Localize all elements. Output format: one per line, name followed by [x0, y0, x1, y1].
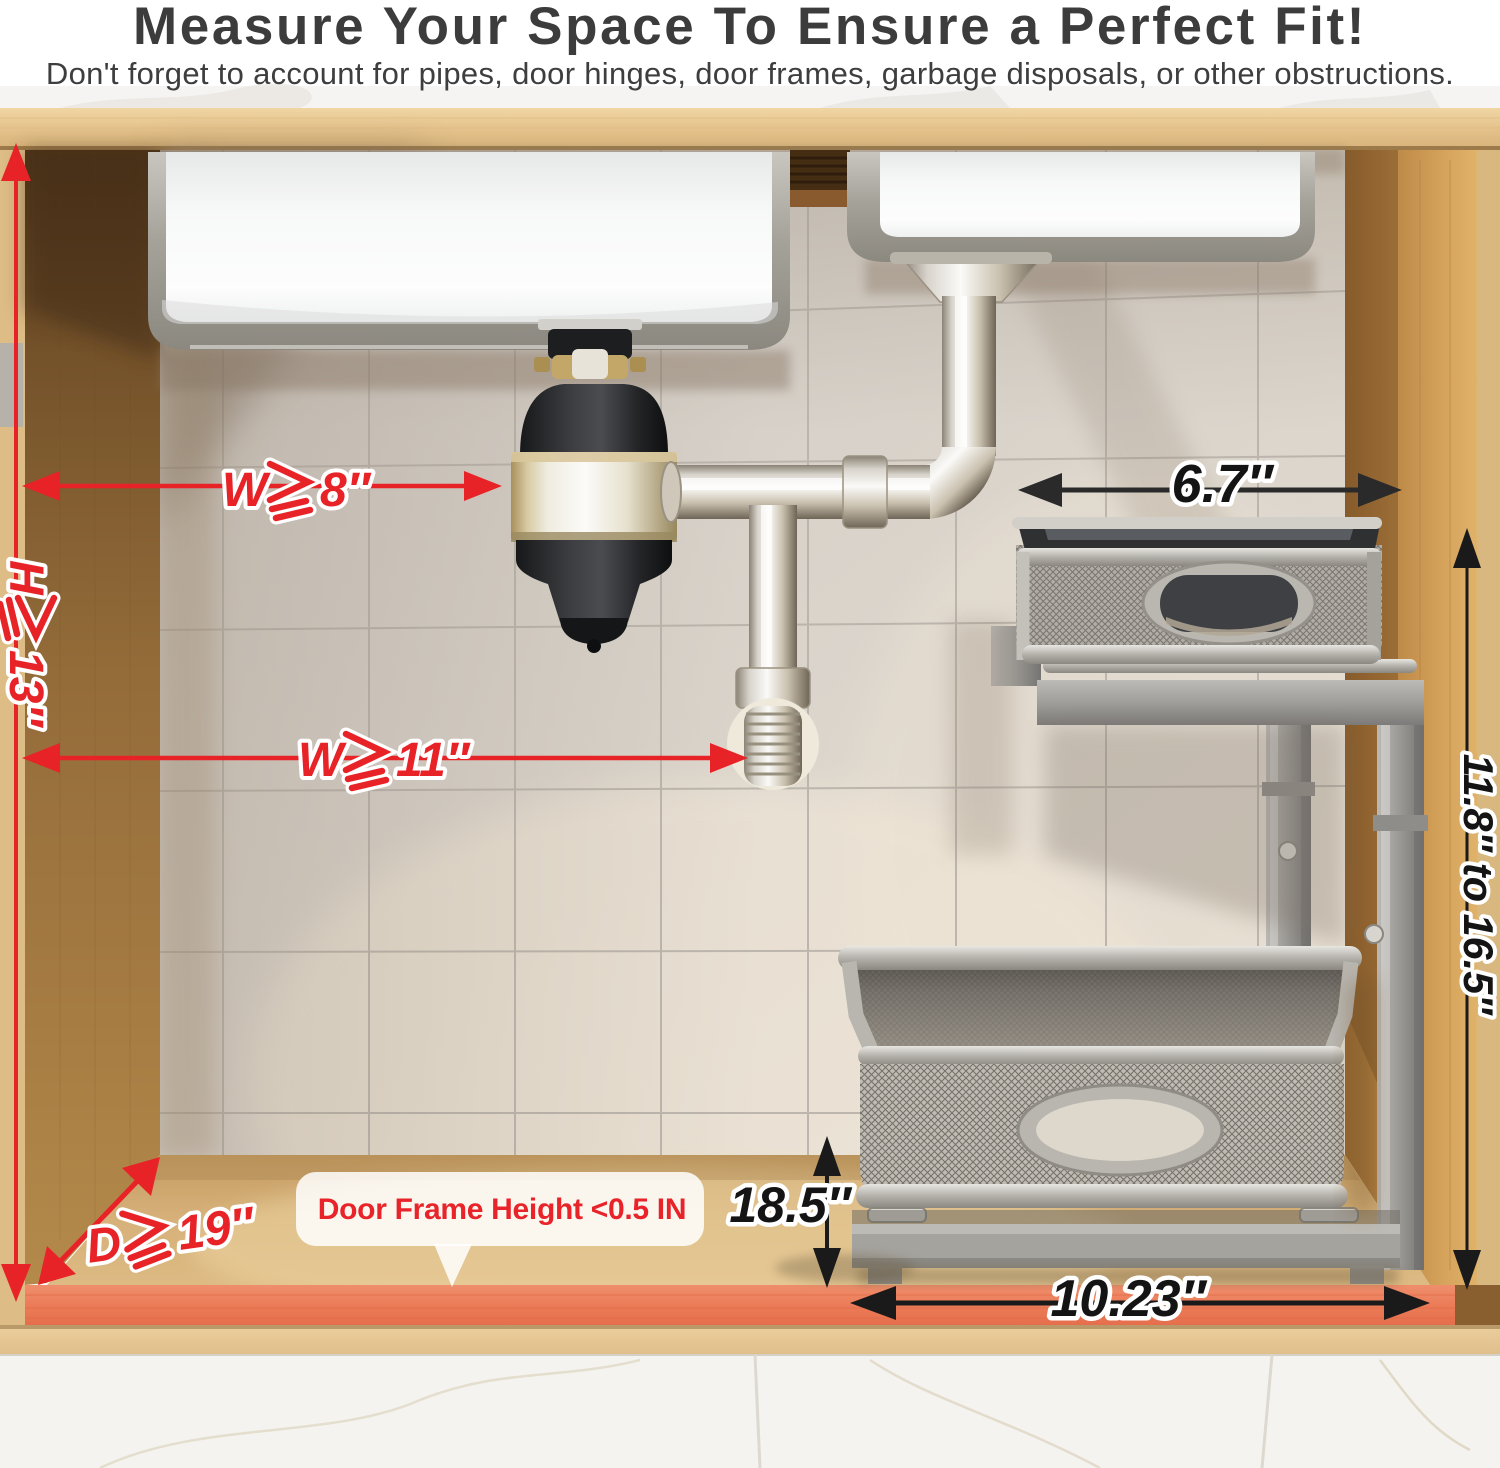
svg-text:Door Frame Height <0.5 IN: Door Frame Height <0.5 IN	[318, 1193, 686, 1226]
svg-text:11″: 11″	[396, 734, 471, 787]
svg-text:W: W	[222, 464, 271, 517]
svg-text:H: H	[0, 560, 52, 596]
svg-text:8″: 8″	[320, 464, 372, 517]
svg-text:10.23″: 10.23″	[1050, 1270, 1207, 1328]
svg-text:Don't forget to account for pi: Don't forget to account for pipes, door …	[46, 56, 1454, 91]
svg-text:Measure Your Space To Ensure a: Measure Your Space To Ensure a Perfect F…	[133, 0, 1367, 56]
svg-text:D: D	[83, 1216, 125, 1273]
svg-text:W: W	[298, 734, 347, 787]
svg-text:19″: 19″	[174, 1198, 259, 1261]
svg-text:11.8″ to 16.5″: 11.8″ to 16.5″	[1455, 754, 1500, 1017]
svg-text:18.5″: 18.5″	[729, 1177, 852, 1233]
svg-text:6.7″: 6.7″	[1172, 454, 1275, 514]
svg-text:13″: 13″	[0, 650, 52, 728]
